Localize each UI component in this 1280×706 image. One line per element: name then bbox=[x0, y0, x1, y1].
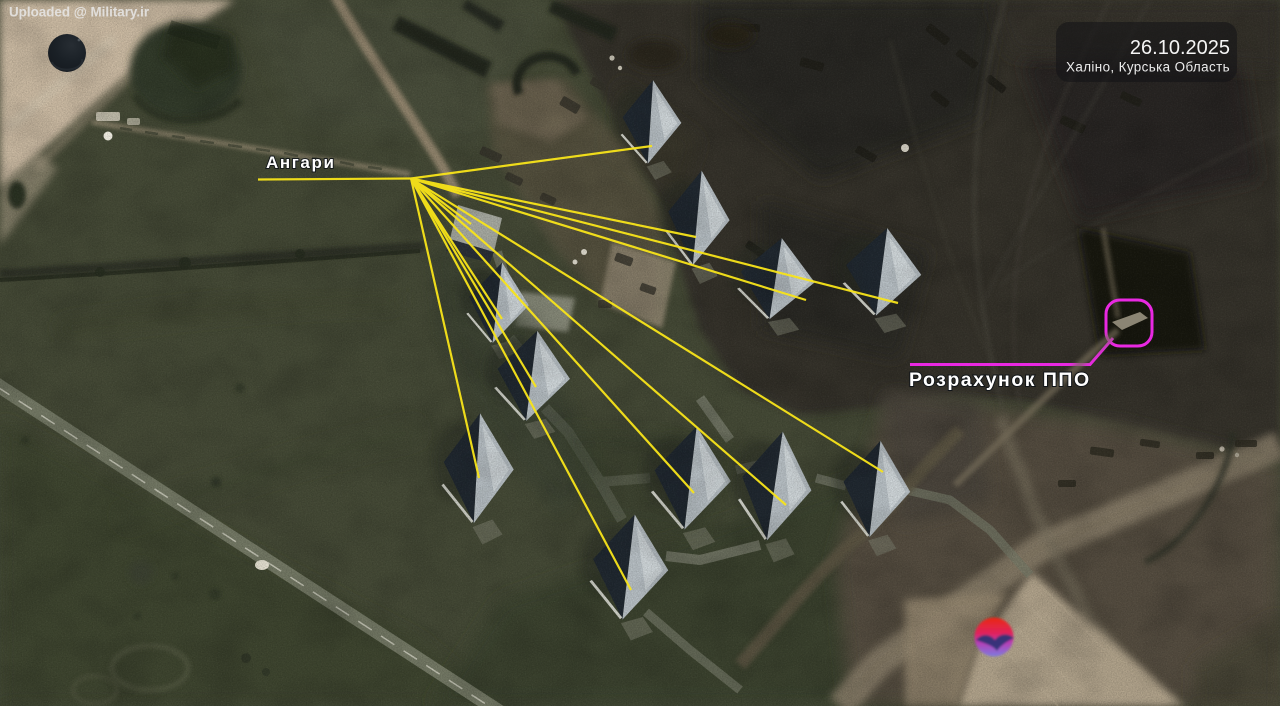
svg-text:Халіно, Курська Область: Халіно, Курська Область bbox=[1066, 60, 1230, 75]
svg-text:Розрахунок ППО: Розрахунок ППО bbox=[909, 369, 1091, 391]
svg-text:26.10.2025: 26.10.2025 bbox=[1130, 37, 1230, 59]
svg-text:Ангари: Ангари bbox=[266, 153, 336, 172]
svg-text:Uploaded @ Military.ir: Uploaded @ Military.ir bbox=[9, 5, 150, 20]
